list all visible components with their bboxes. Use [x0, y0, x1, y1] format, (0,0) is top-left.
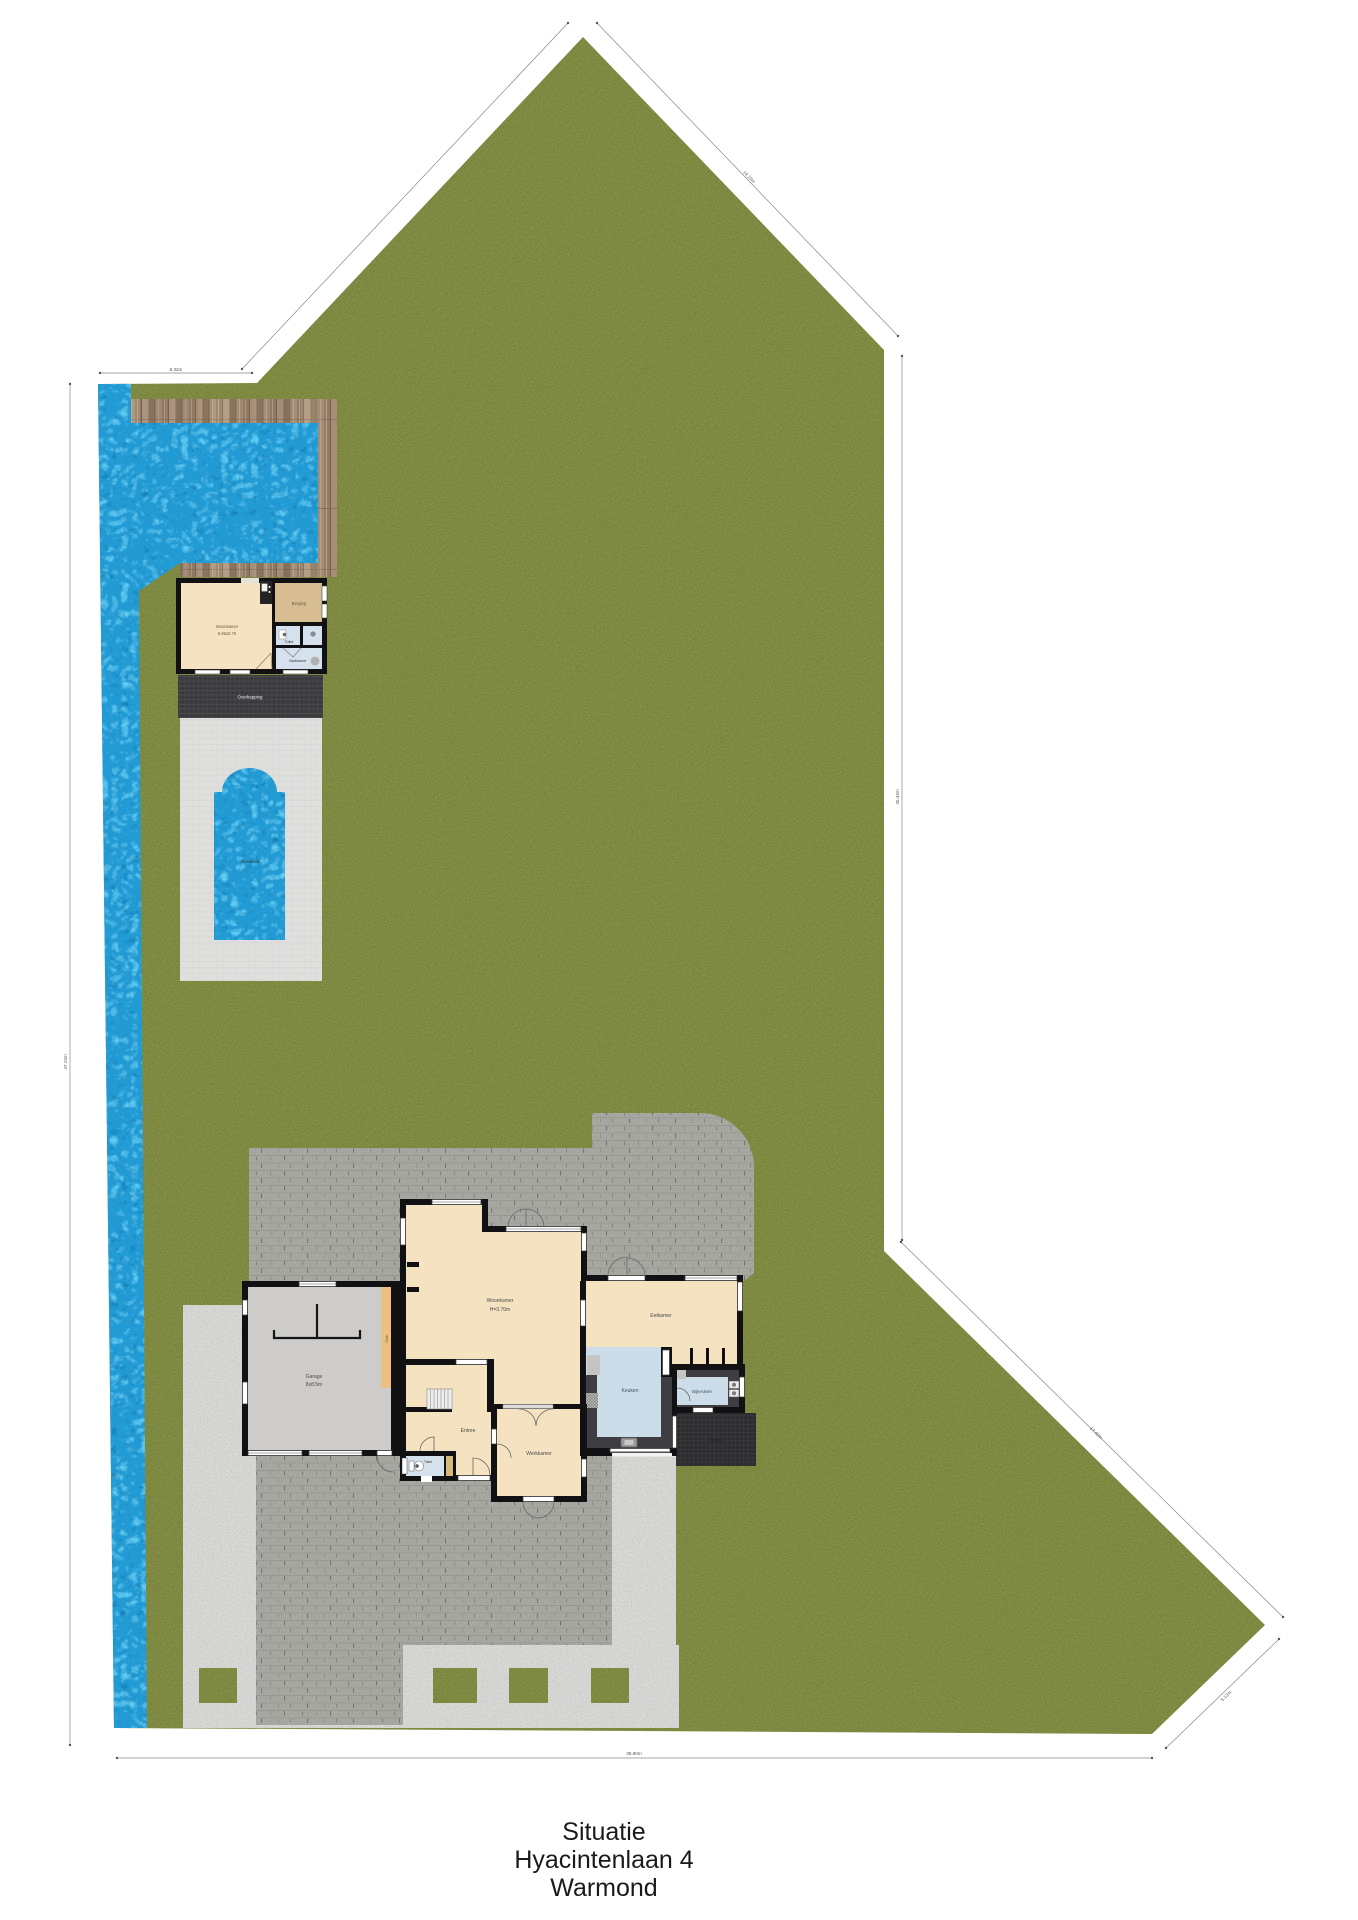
svg-text:H=3.70m: H=3.70m — [490, 1307, 510, 1313]
svg-text:8x8.5m: 8x8.5m — [306, 1382, 322, 1388]
svg-text:Keuken: Keuken — [622, 1388, 639, 1394]
svg-text:Bijkeuken: Bijkeuken — [692, 1389, 712, 1394]
svg-text:Zwembad: Zwembad — [241, 859, 260, 864]
svg-text:Garage: Garage — [306, 1374, 323, 1380]
svg-text:38.90m: 38.90m — [626, 1751, 641, 1756]
svg-text:8.32m: 8.32m — [170, 367, 183, 372]
svg-text:Terras: Terras — [709, 1438, 723, 1444]
svg-text:Badkamer: Badkamer — [289, 659, 307, 663]
svg-text:Hyacintenlaan 4: Hyacintenlaan 4 — [514, 1846, 693, 1874]
svg-text:Situatie: Situatie — [562, 1818, 645, 1846]
svg-text:Berging: Berging — [292, 601, 307, 606]
svg-text:Toilet: Toilet — [424, 1460, 432, 1464]
svg-text:Overkapping: Overkapping — [238, 695, 263, 700]
svg-text:Entree: Entree — [461, 1428, 476, 1434]
svg-text:Eetkamer: Eetkamer — [650, 1313, 672, 1319]
svg-text:Vide: Vide — [384, 1334, 389, 1343]
svg-text:Werkkamer: Werkkamer — [526, 1451, 552, 1457]
svg-text:Woonkamer: Woonkamer — [487, 1298, 514, 1304]
svg-text:Toilet: Toilet — [285, 640, 295, 644]
svg-text:6.95x5.75: 6.95x5.75 — [218, 631, 237, 636]
svg-text:40.44m: 40.44m — [895, 789, 900, 804]
svg-text:Warmond: Warmond — [550, 1874, 657, 1902]
svg-text:Woonkamer: Woonkamer — [216, 624, 239, 629]
svg-text:47.24m: 47.24m — [63, 1054, 68, 1069]
